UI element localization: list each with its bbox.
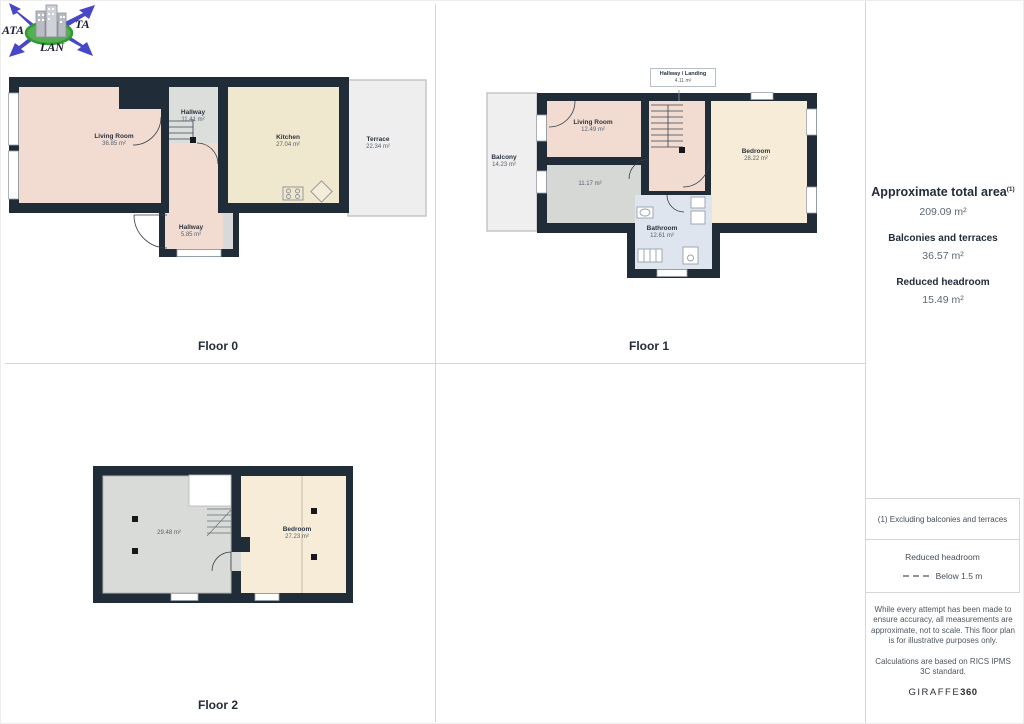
legend-title: Reduced headroom [866,552,1019,562]
balconies-heading: Balconies and terraces [865,233,1021,244]
floorplan-page: ATA TA LAN [0,0,1024,724]
floor2-doorway-gap [231,552,241,571]
floor2-stair-void [189,475,231,506]
balconies-value: 36.57 m² [865,250,1021,262]
floor0-hallway-shape [169,87,218,143]
disclaimer-text-1: While every attempt has been made to ens… [870,605,1016,647]
floor1-landing-shape [649,101,705,191]
footnote-box: (1) Excluding balconies and terraces [866,498,1020,539]
total-area-value: 209.09 m² [865,206,1021,218]
divider-horizontal [5,363,865,364]
floor2-panel: 29.48 m² Bedroom 27.23 m² Floor 2 [1,363,435,724]
floor0-plan-drawing [1,1,435,363]
floor0-hallway2-strip [223,213,233,249]
floor0-terrace-shape [348,80,426,216]
floor2-title: Floor 2 [198,698,238,712]
legend-row: Below 1.5 m [866,571,1019,581]
floor1-panel: Hallway / Landing 4.11 m² Balcony 14.23 … [435,1,865,363]
floor2-wall-stub [241,537,250,552]
floor1-plan-drawing [435,1,865,363]
floor2-bedroom-shape [241,476,346,593]
floor0-wall-step [119,77,163,109]
floor1-living-room-shape [547,101,641,157]
floor0-panel: Living Room 36.85 m² Hallway 11.41 m² Ki… [1,1,435,363]
total-area-heading: Approximate total area(1) [865,185,1021,199]
legend-value: Below 1.5 m [936,571,983,581]
floor0-title: Floor 0 [198,339,238,353]
footnote-text: (1) Excluding balconies and terraces [866,515,1019,524]
legend-box: Reduced headroom Below 1.5 m [866,539,1020,593]
reduced-headroom-heading: Reduced headroom [865,277,1021,288]
floor1-grayroom-shape [547,165,641,223]
dashed-line-swatch [903,575,929,577]
reduced-headroom-value: 15.49 m² [865,294,1021,306]
floor1-bedroom-shape [711,101,807,223]
disclaimer-block: While every attempt has been made to ens… [870,605,1016,700]
floor1-balcony-shape [487,93,537,231]
floor2-plan-drawing [1,363,435,724]
floor0-corridor-shape [169,143,218,213]
brand-logo: GIRAFFE360 [870,687,1016,699]
area-summary: Approximate total area(1) 209.09 m² Balc… [865,185,1021,321]
floor1-title: Floor 1 [629,339,669,353]
floor1-hallway-landing-callout: Hallway / Landing 4.11 m² [650,68,716,87]
floor0-hallway2-shape [165,213,223,249]
disclaimer-text-2: Calculations are based on RICS IPMS 3C s… [870,657,1016,678]
sidebar: Approximate total area(1) 209.09 m² Balc… [865,1,1021,724]
